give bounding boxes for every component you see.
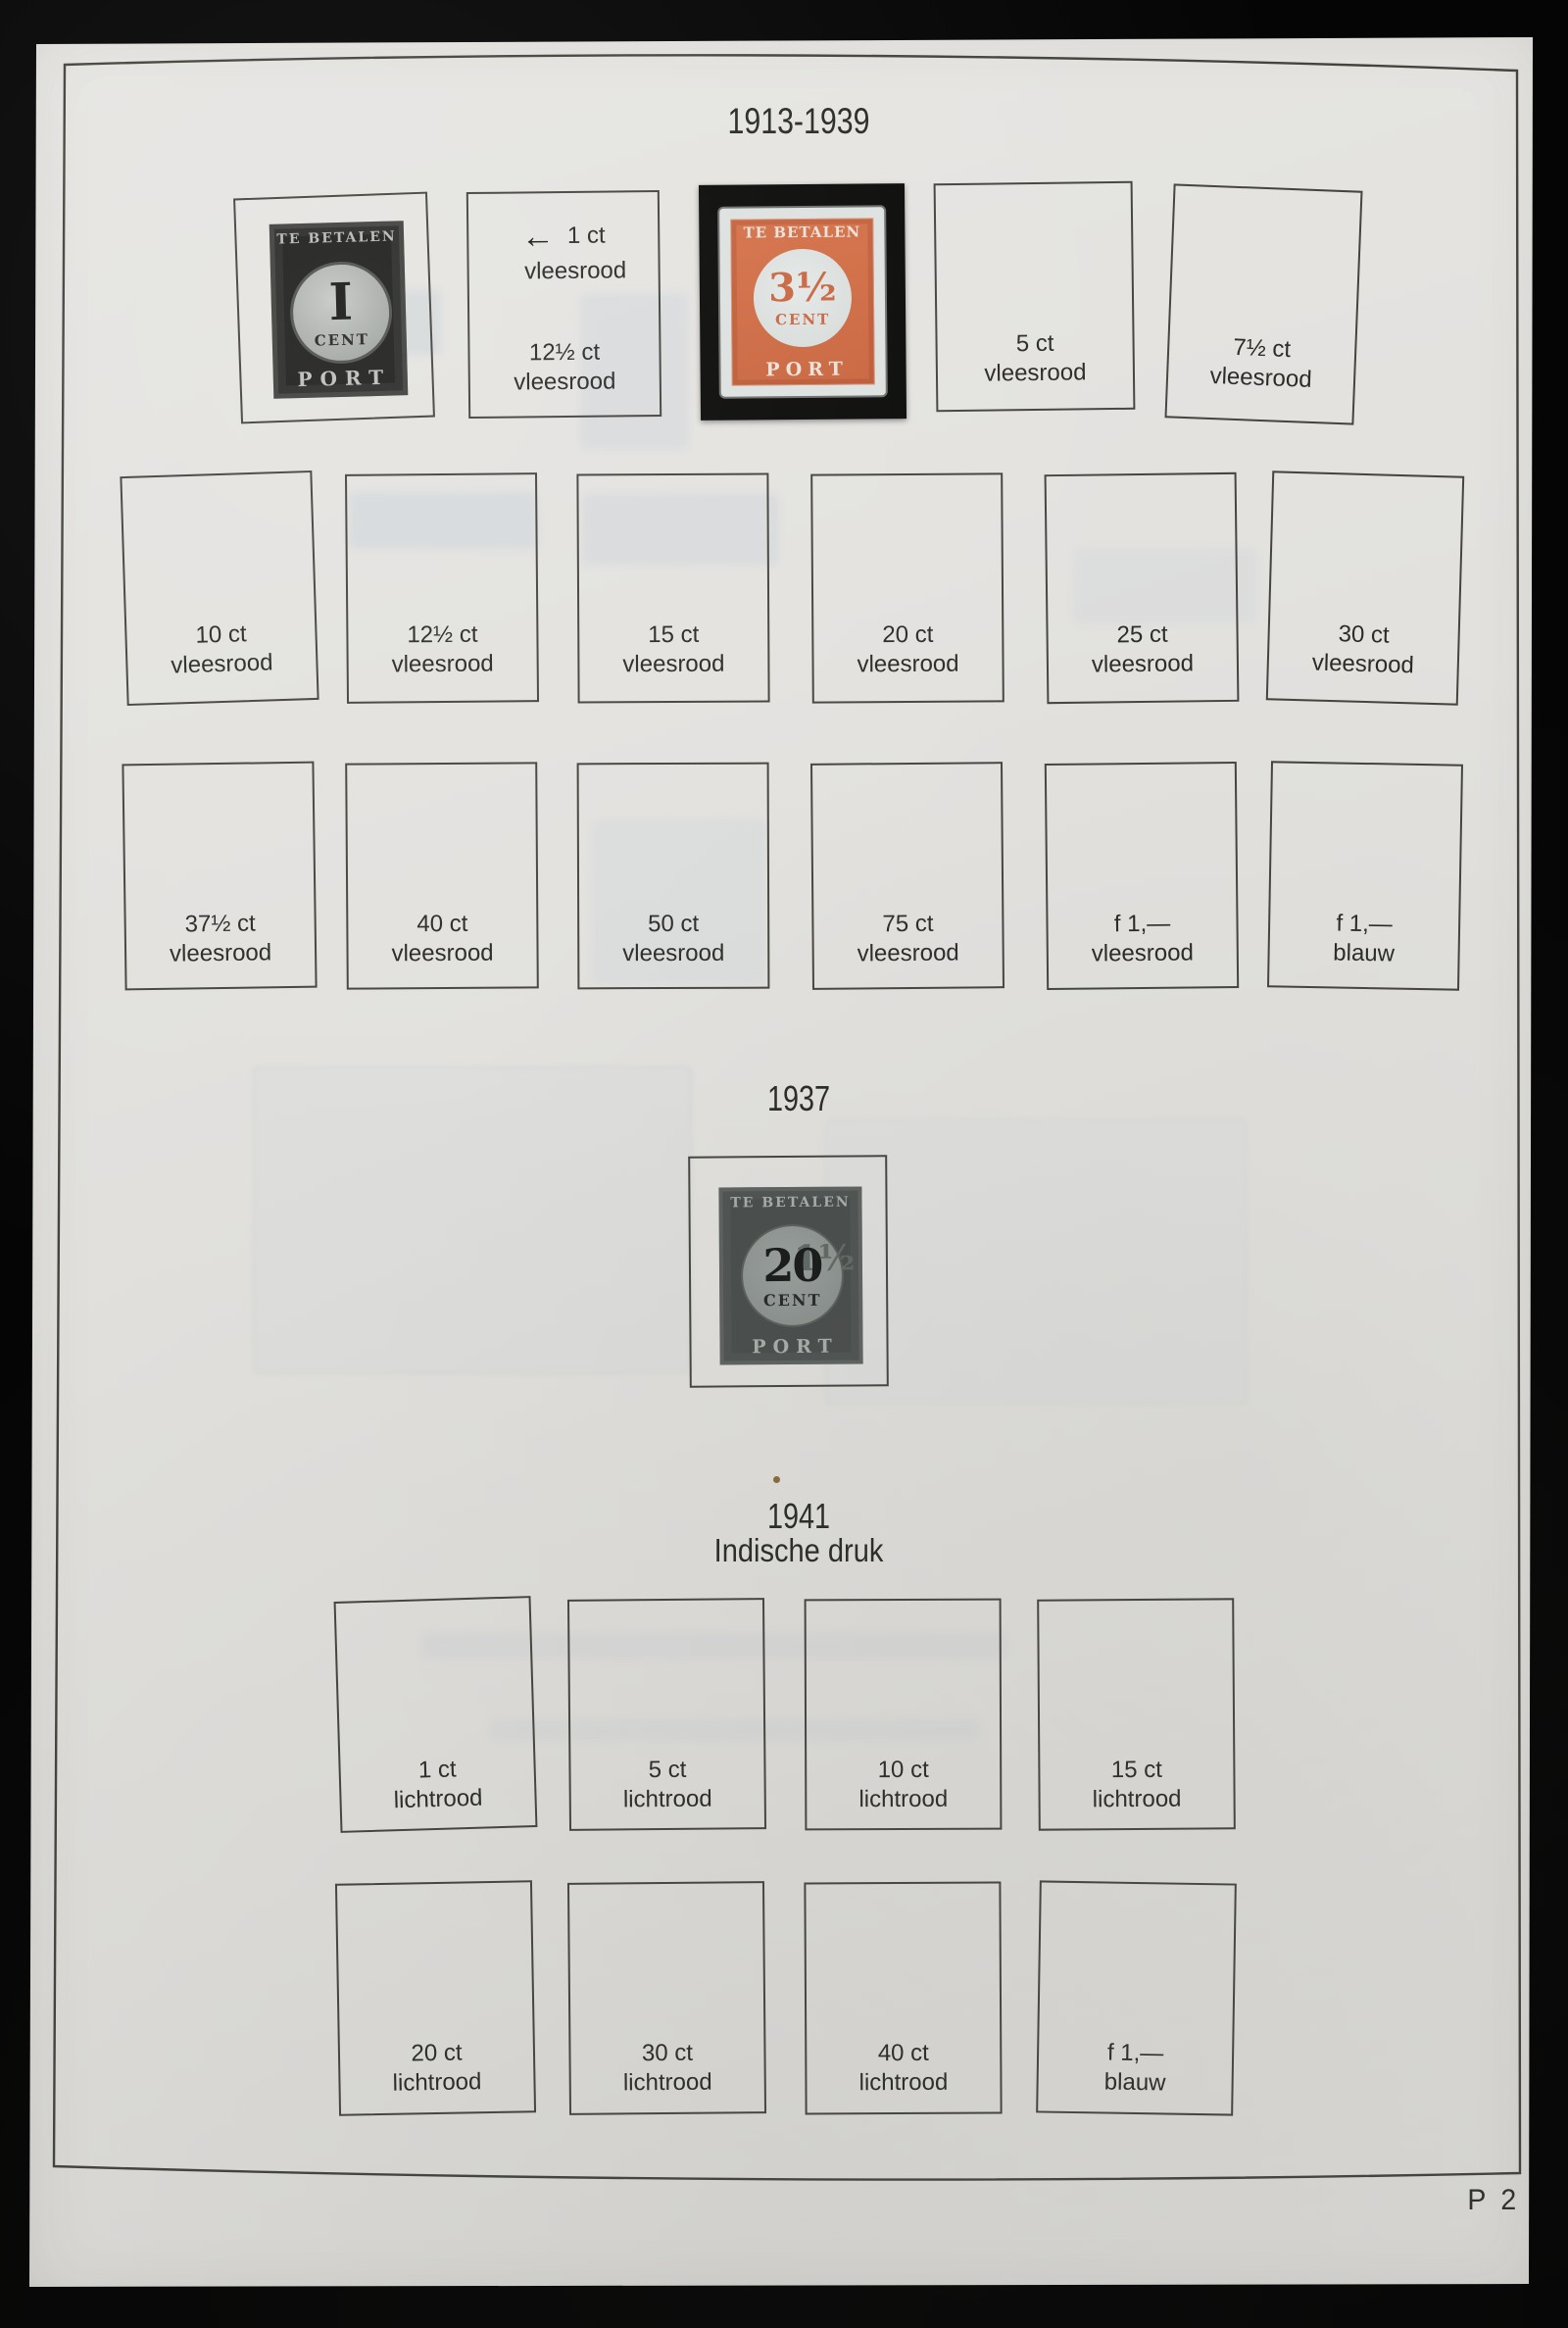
stamp-slot: 1 ctlichtrood: [334, 1596, 538, 1833]
stamp-footer-text: PORT: [719, 1335, 862, 1358]
slot-value-label: 37½ ct: [125, 909, 314, 941]
slot-color-label: lichtrood: [341, 1782, 535, 1817]
stamp-header-text: TE BETALEN: [730, 223, 873, 241]
slot-color-label: blauw: [1038, 2066, 1231, 2099]
slot-value-label: f 1,—: [1039, 2037, 1232, 2069]
mounted-stamp-1-cent: TE BETALEN I CENT PORT: [269, 221, 409, 399]
stamp-value-medallion: 3½ CENT: [754, 249, 853, 348]
stamp-slot: 40 ctlichtrood: [804, 1881, 1002, 2114]
stamp-unit: CENT: [775, 310, 830, 327]
slot-color-label: lichtrood: [1041, 1784, 1234, 1814]
stamp-unit: CENT: [314, 330, 369, 349]
slot-color-label: lichtrood: [807, 2067, 1000, 2098]
stamp-slot: 10 ctvleesrood: [120, 471, 318, 706]
slot-color-label: vleesrood: [813, 649, 1002, 679]
slot-color-label: vleesrood: [579, 649, 767, 679]
mounted-stamp-3half-cent: TE BETALEN 3½ CENT PORT: [719, 207, 886, 396]
slot-color-label: vleesrood: [1049, 649, 1237, 680]
slot-color-label: vleesrood: [348, 938, 536, 968]
slot-value-label: 40 ct: [348, 909, 536, 939]
photographed-album-page: { "titles": { "series1": "1913-1939", "s…: [0, 0, 1568, 2328]
stamp-slot-5ct: 5 ct vleesrood: [934, 181, 1136, 412]
stamp-design-panel: TE BETALEN 3½ CENT PORT: [730, 218, 874, 385]
section-title-1937: 1937: [642, 1078, 955, 1119]
stamp-slot-7half-ct: 7½ ct vleesrood: [1164, 183, 1362, 424]
stamp-slot: f 1,—blauw: [1036, 1880, 1237, 2115]
slot-value-label: 1 ct: [567, 223, 606, 250]
slot-value-label: 5 ct: [937, 328, 1132, 360]
stamp-slot-12half-ct: ← 1 ct vleesrood 12½ ct vleesrood: [466, 190, 661, 419]
slot-color-label: vleesrood: [1168, 360, 1354, 396]
stamp-slot: 5 ctlichtrood: [567, 1598, 766, 1831]
slot-color-label: vleesrood: [1049, 938, 1237, 969]
slot-color-label: lichtrood: [340, 2066, 533, 2099]
slot-value-label: 5 ct: [570, 1755, 763, 1786]
black-stamp-mount: TE BETALEN 3½ CENT PORT: [699, 183, 906, 421]
slot-value-label: f 1,—: [1048, 909, 1236, 940]
slot-color-label: vleesrood: [481, 257, 670, 286]
slot-color-label: vleesrood: [1268, 647, 1457, 681]
stamp-slot: f 1,—blauw: [1267, 761, 1463, 990]
mounted-stamp-1937-overprint: TE BETALEN 1½ 20 CENT PORT: [718, 1186, 862, 1364]
stamp-slot: 25 ctvleesrood: [1045, 472, 1240, 704]
page-number: P 2: [1467, 2184, 1520, 2217]
stamp-slot: f 1,—vleesrood: [1045, 762, 1239, 990]
slot-value-label: 50 ct: [579, 910, 767, 940]
slot-color-label: vleesrood: [349, 649, 537, 680]
stamp-slot: 15 ctvleesrood: [576, 472, 769, 703]
slot-color-label: vleesrood: [814, 938, 1003, 969]
stamp-header-text: TE BETALEN: [269, 228, 404, 248]
stamp-slot: 30 ctvleesrood: [1266, 471, 1464, 705]
stamp-value-medallion: I CENT: [289, 261, 394, 366]
stamp-slot: 20 ctlichtrood: [335, 1880, 536, 2115]
paper-speck: [773, 1476, 780, 1483]
stamp-slot: 40 ctvleesrood: [345, 762, 539, 989]
stamp-footer-text: PORT: [732, 358, 875, 380]
overprint-value: 20: [762, 1242, 821, 1287]
slot-value-label: 10 ct: [807, 1756, 1000, 1786]
slot-color-label: vleesrood: [579, 939, 767, 969]
slot-value-label: 30 ct: [570, 2038, 763, 2069]
slot-color-label: lichtrood: [571, 2067, 764, 2099]
slot-color-label: vleesrood: [126, 938, 315, 970]
slot-value-label: 40 ct: [807, 2038, 1000, 2068]
slot-value-label: f 1,—: [1270, 908, 1458, 940]
stamp-footer-text: PORT: [273, 365, 409, 392]
slot-color-label: vleesrood: [938, 358, 1133, 389]
stamp-slot: 12½ ctvleesrood: [345, 472, 539, 704]
slot-value-label: 15 ct: [579, 619, 767, 650]
stamp-slot: 50 ctvleesrood: [577, 763, 770, 990]
slot-value-label: 15 ct: [1040, 1755, 1233, 1785]
slot-value-label: 12½ ct: [348, 619, 536, 651]
stamp-slot: 20 ctvleesrood: [810, 472, 1004, 703]
stamp-slot: 75 ctvleesrood: [810, 762, 1004, 990]
stamp-slot: 37½ ctvleesrood: [122, 762, 317, 991]
slot-value-label: 75 ct: [813, 909, 1002, 940]
slot-value-label: 20 ct: [340, 2037, 533, 2069]
stamp-slot-1937-frame: TE BETALEN 1½ 20 CENT PORT: [688, 1155, 889, 1387]
slot-value-label: 12½ ct: [469, 337, 659, 369]
stamp-unit: CENT: [763, 1290, 822, 1309]
stamp-value-medallion: 1½ 20 CENT: [741, 1224, 845, 1328]
slot-value-label: 20 ct: [813, 619, 1002, 650]
section-title-1913-1939: 1913-1939: [638, 101, 959, 142]
left-arrow-icon: ←: [521, 226, 555, 246]
stamp-slot: 15 ctlichtrood: [1037, 1598, 1236, 1830]
stamp-value: 3½: [768, 268, 837, 308]
stamp-slot: 30 ctlichtrood: [567, 1881, 766, 2115]
stamp-slot: 10 ctlichtrood: [805, 1599, 1003, 1831]
section-subtitle-indische-druk: Indische druk: [583, 1532, 1014, 1569]
stamp-value: I: [328, 276, 354, 328]
stamp-header-text: TE BETALEN: [718, 1194, 861, 1211]
slot-color-label: lichtrood: [807, 1785, 1000, 1815]
slot-color-label: vleesrood: [470, 367, 660, 398]
slot-color-label: lichtrood: [571, 1784, 764, 1815]
section-title-1941: 1941: [642, 1496, 955, 1537]
slot-value-label: 25 ct: [1048, 619, 1236, 651]
slot-color-label: vleesrood: [127, 647, 317, 682]
slot-color-label: blauw: [1269, 937, 1457, 969]
